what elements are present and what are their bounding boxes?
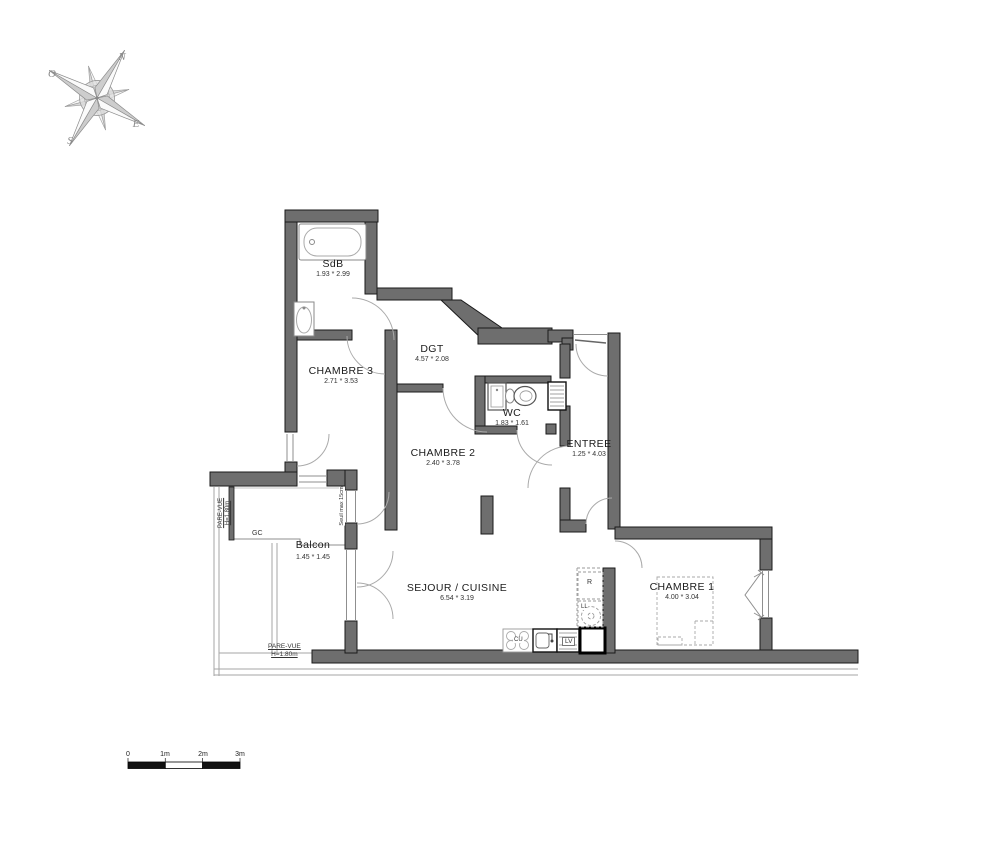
compass-east-label: E (133, 118, 140, 130)
room-name: SdB (316, 259, 350, 271)
room-name: CHAMBRE 1 (650, 582, 715, 594)
compass-south-label: S (67, 135, 73, 147)
room-dims: 1.45 * 1.45 (296, 554, 331, 562)
door-arc-entree-west (528, 446, 570, 488)
compass-north-label: N (118, 51, 125, 63)
balcony-railing (234, 488, 345, 653)
room-dims: 4.00 * 3.04 (650, 594, 715, 602)
french-door-arc-bottom (357, 583, 393, 619)
scale-tick-0: 0 (126, 751, 130, 758)
window-arc-balcony (357, 492, 389, 524)
pare-vue-height: H=1.80m (225, 498, 232, 528)
window-opening-symbol (745, 570, 764, 620)
floor-plan: SdB 1.93 * 2.99 DGT 4.57 * 2.08 CHAMBRE … (0, 0, 1000, 857)
annotation-cooktop: CU (513, 637, 524, 643)
scale-tick-1m: 1m (160, 751, 170, 758)
pare-vue-text: PARE-VUE (268, 643, 301, 651)
room-label-dgt: DGT 4.57 * 2.08 (415, 344, 449, 363)
annotation-pare-vue-bottom: PARE-VUE H=1.80m (268, 643, 301, 659)
appliance-spaces (577, 568, 603, 628)
annotation-seuil: Seuil max 15cm (339, 486, 345, 525)
room-name: SEJOUR / CUISINE (407, 583, 507, 595)
pare-vue-text: PARE-VUE (218, 498, 225, 528)
scale-tick-2m: 2m (198, 751, 208, 758)
room-dims: 4.57 * 2.08 (415, 356, 449, 364)
room-dims: 1.25 * 4.03 (567, 451, 612, 459)
exterior-walls (210, 210, 858, 663)
room-dims: 6.54 * 3.19 (407, 595, 507, 603)
pare-vue-height: H=1.80m (268, 651, 301, 659)
room-label-chambre2: CHAMBRE 2 2.40 * 3.78 (411, 448, 476, 467)
compass-rose-icon (22, 23, 172, 173)
room-label-entree: ENTREE 1.25 * 4.03 (567, 439, 612, 458)
bathroom-sink (294, 302, 314, 336)
kitchen-sink (533, 629, 557, 652)
room-label-chambre3: CHAMBRE 3 2.71 * 3.53 (309, 366, 374, 385)
room-dims: 2.71 * 3.53 (309, 378, 374, 386)
duct-column (580, 628, 605, 653)
wc-hand-basin (488, 383, 506, 410)
room-name: Balcon (296, 540, 331, 552)
room-label-wc: WC 1.83 * 1.61 (495, 408, 529, 427)
room-name: WC (495, 408, 529, 420)
annotation-pare-vue-left: PARE-VUE H=1.80m (218, 498, 232, 528)
room-dims: 1.83 * 1.61 (495, 420, 529, 428)
room-dims: 2.40 * 3.78 (411, 460, 476, 468)
door-arc-wc (517, 430, 552, 465)
door-arc-front (576, 344, 608, 376)
bathtub (299, 224, 366, 260)
wc-toilet (506, 387, 537, 406)
room-name: DGT (415, 344, 449, 356)
annotation-washer: LL (581, 604, 588, 610)
annotation-dishwasher: LV (562, 637, 575, 646)
room-label-sdb: SdB 1.93 * 2.99 (316, 259, 350, 278)
room-name: ENTREE (567, 439, 612, 451)
annotation-gc: GC (252, 530, 263, 537)
room-name: CHAMBRE 2 (411, 448, 476, 460)
annotation-fridge: R (587, 579, 592, 586)
scale-tick-3m: 3m (235, 751, 245, 758)
window-arc-chambre3 (297, 434, 329, 466)
french-door-arc-top (357, 551, 393, 587)
room-label-chambre1: CHAMBRE 1 4.00 * 3.04 (650, 582, 715, 601)
front-door-leaf (575, 340, 606, 343)
door-arc-chambre1 (615, 541, 642, 568)
room-name: CHAMBRE 3 (309, 366, 374, 378)
compass-west-label: O (48, 68, 56, 80)
technical-panel (548, 382, 566, 410)
room-label-sejour-cuisine: SEJOUR / CUISINE 6.54 * 3.19 (407, 583, 507, 602)
floor-plan-drawing (0, 0, 1000, 857)
room-label-balcon: Balcon 1.45 * 1.45 (296, 540, 331, 561)
room-dims: 1.93 * 2.99 (316, 271, 350, 279)
